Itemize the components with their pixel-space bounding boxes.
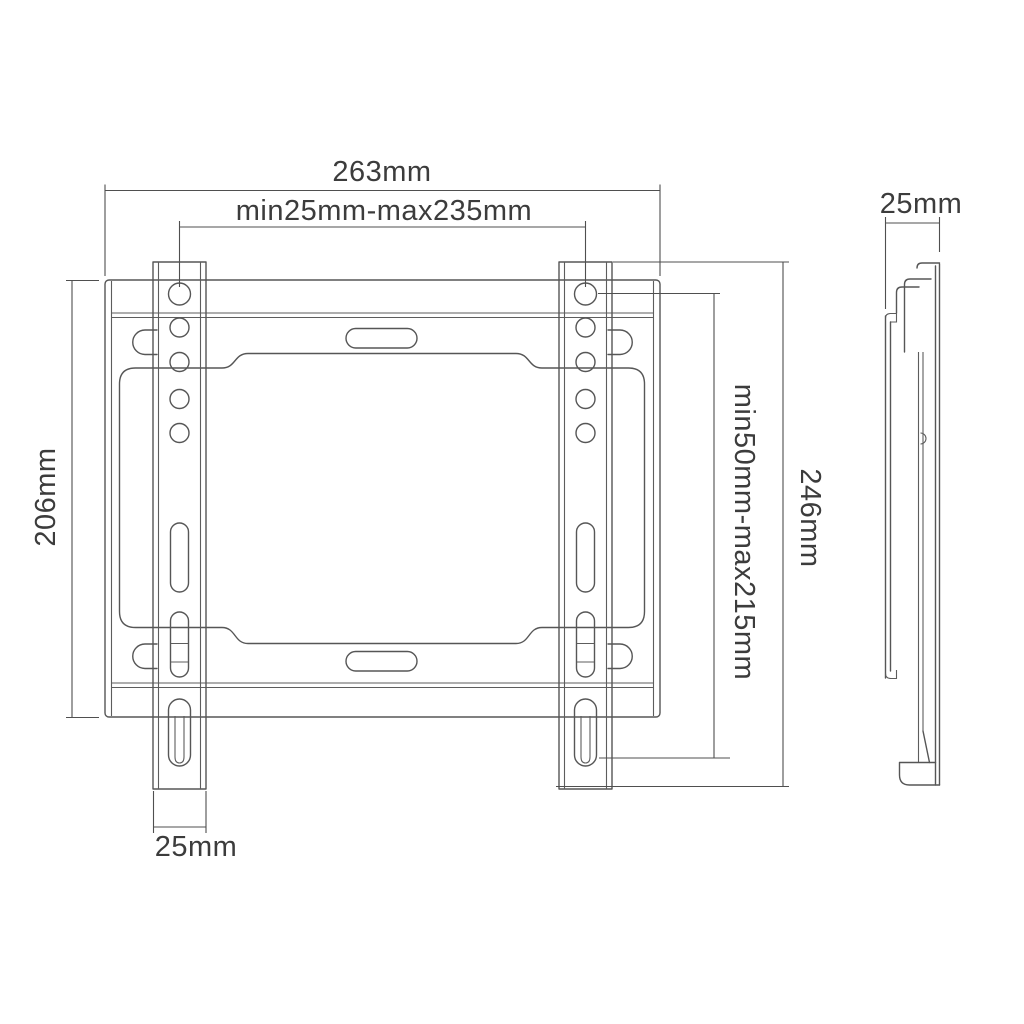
dim-hole-width-range: min25mm-max235mm bbox=[180, 195, 586, 287]
plate-bottom-slot bbox=[346, 652, 417, 672]
right-rail-slot-bottom-inner bbox=[581, 716, 590, 763]
left-rail-hole-5 bbox=[170, 424, 189, 443]
left-rail-folds bbox=[159, 262, 201, 789]
left-rail-slot-bottom-inner bbox=[175, 716, 184, 763]
right-rail-hole-5 bbox=[576, 424, 595, 443]
left-rail-slot-lower bbox=[171, 612, 189, 677]
side-bottom-foot bbox=[900, 763, 940, 786]
right-rail bbox=[559, 262, 612, 789]
side-top-hook-outer bbox=[905, 279, 932, 352]
left-rail-outline bbox=[153, 262, 206, 789]
side-plate-edge bbox=[886, 316, 891, 678]
dim-hole-height-range: min50mm-max215mm bbox=[598, 294, 760, 759]
side-bottom-hook-diagonal bbox=[923, 731, 930, 763]
dim-plate-height: 206mm bbox=[30, 281, 99, 718]
dim-label-plate-height: 206mm bbox=[30, 447, 62, 546]
right-rail-slot-upper bbox=[577, 523, 595, 592]
plate-inner-contour bbox=[120, 354, 645, 644]
right-rail-hole-4 bbox=[576, 390, 595, 409]
side-rail-fold-lines bbox=[919, 352, 924, 763]
left-rail-hole-4 bbox=[170, 390, 189, 409]
dim-label-hole-height-range: min50mm-max215mm bbox=[728, 384, 760, 680]
plate-top-fold-lines bbox=[112, 313, 654, 318]
dim-label-side-depth: 25mm bbox=[880, 188, 963, 220]
right-rail-slot-steps bbox=[577, 644, 594, 663]
dim-rail-width: 25mm bbox=[154, 791, 238, 863]
technical-drawing-page: 263mm min25mm-max235mm 206mm min50mm-max… bbox=[0, 0, 1024, 1024]
side-view bbox=[886, 263, 940, 785]
right-rail-folds bbox=[565, 262, 607, 789]
front-view bbox=[105, 262, 660, 789]
left-rail-slot-steps bbox=[171, 644, 188, 663]
side-rail-face bbox=[936, 264, 940, 785]
right-rail-hole-2 bbox=[576, 318, 595, 337]
right-rail-slot-bottom bbox=[575, 699, 597, 766]
dim-label-hole-width-range: min25mm-max235mm bbox=[236, 195, 532, 227]
left-rail-slot-upper bbox=[171, 523, 189, 592]
dim-label-rail-width: 25mm bbox=[155, 831, 238, 863]
right-rail-slot-lower bbox=[577, 612, 595, 677]
left-rail-hole-2 bbox=[170, 318, 189, 337]
plate-top-slot bbox=[346, 329, 417, 349]
side-top-hook-inner bbox=[897, 287, 920, 313]
plate-side-folds bbox=[112, 281, 654, 716]
wall-mount-drawing: 263mm min25mm-max235mm 206mm min50mm-max… bbox=[0, 0, 1024, 1024]
dim-side-depth: 25mm bbox=[880, 188, 963, 309]
left-rail bbox=[153, 262, 206, 789]
dim-label-total-height: 246mm bbox=[794, 468, 826, 567]
dim-label-plate-width: 263mm bbox=[332, 156, 431, 188]
plate-bottom-fold-lines bbox=[112, 683, 654, 688]
left-rail-slot-bottom bbox=[169, 699, 191, 766]
side-plate-top-lip bbox=[886, 314, 897, 323]
right-rail-outline bbox=[559, 262, 612, 789]
